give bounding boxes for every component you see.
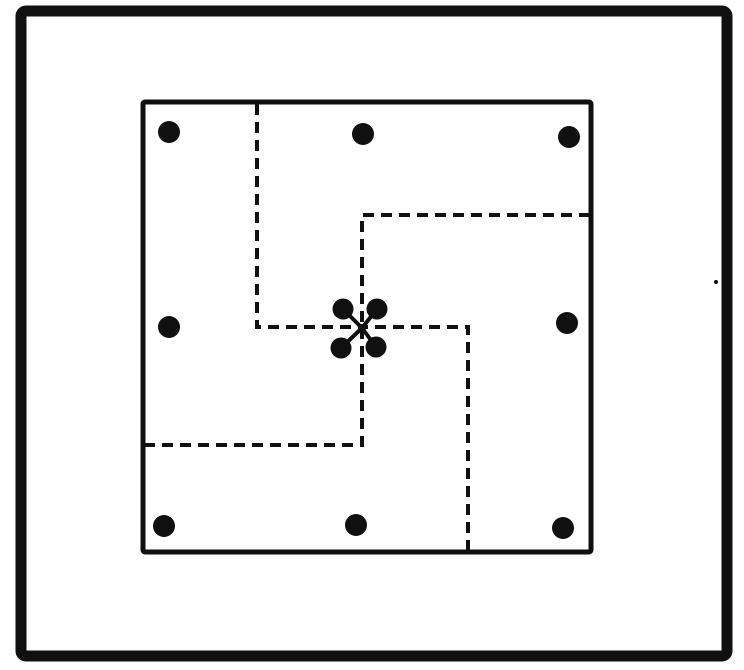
perimeter-dot-middle-left — [158, 316, 180, 338]
perimeter-dot-top-left — [158, 121, 180, 143]
cluster-dot-southwest — [331, 338, 352, 359]
cluster-dot-northwest — [333, 299, 354, 320]
cluster-dot-northeast — [367, 299, 388, 320]
cluster-center-knot — [358, 324, 366, 332]
perimeter-dot-top-center — [352, 123, 374, 145]
perimeter-dot-bottom-left — [153, 515, 175, 537]
ink-speck — [714, 280, 718, 284]
puzzle-diagram-figure — [0, 0, 744, 670]
diagram-canvas — [0, 0, 744, 670]
perimeter-dot-middle-right — [556, 312, 578, 334]
perimeter-dot-top-right — [558, 126, 580, 148]
cluster-dot-southeast — [366, 337, 387, 358]
page: { "figure": { "kind": "vintage-puzzle-pl… — [0, 0, 744, 670]
perimeter-dot-bottom-center — [345, 514, 367, 536]
perimeter-dot-bottom-right — [552, 517, 574, 539]
